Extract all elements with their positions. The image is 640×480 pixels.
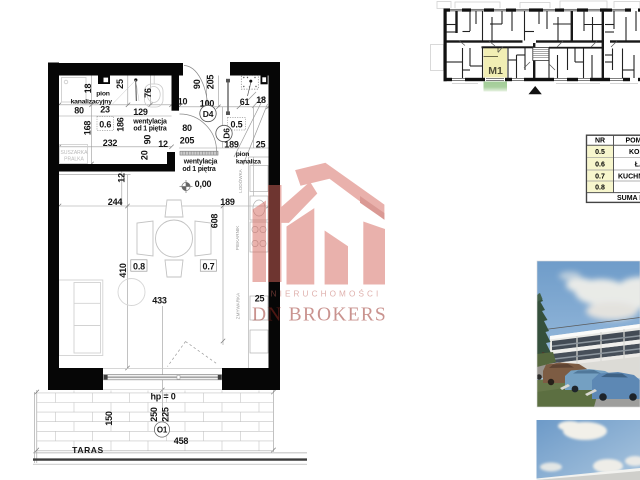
svg-text:150: 150 — [104, 411, 114, 426]
svg-text:KUCHNIA + P.: KUCHNIA + P. — [618, 173, 640, 180]
svg-text:18: 18 — [256, 95, 266, 105]
svg-text:61: 61 — [240, 97, 250, 107]
svg-text:0.7: 0.7 — [595, 173, 605, 180]
svg-text:POMIESZCZENIE: POMIESZCZENIE — [626, 138, 640, 145]
svg-text:23: 23 — [100, 104, 110, 114]
svg-text:PIEKARNIK: PIEKARNIK — [235, 225, 240, 250]
svg-text:od 1 piętra: od 1 piętra — [182, 166, 216, 173]
svg-text:kanaliza: kanaliza — [236, 158, 261, 165]
svg-text:0.6: 0.6 — [595, 161, 605, 168]
svg-text:76: 76 — [143, 88, 153, 98]
svg-text:90: 90 — [192, 79, 202, 89]
svg-text:12: 12 — [116, 173, 126, 183]
svg-text:hp = 0: hp = 0 — [150, 392, 175, 402]
svg-text:wentylacja: wentylacja — [183, 159, 218, 166]
svg-text:25: 25 — [256, 140, 266, 150]
svg-text:od 1 piętra: od 1 piętra — [133, 126, 167, 133]
svg-text:12: 12 — [158, 139, 168, 149]
svg-text:10: 10 — [178, 96, 188, 106]
svg-text:25: 25 — [255, 294, 265, 304]
svg-text:0.8: 0.8 — [133, 261, 145, 271]
svg-text:232: 232 — [103, 138, 118, 148]
svg-text:0.8: 0.8 — [595, 184, 605, 191]
svg-text:205: 205 — [180, 136, 195, 146]
svg-text:250: 250 — [149, 407, 159, 422]
svg-text:0.5: 0.5 — [595, 149, 605, 156]
svg-text:wentylacja: wentylacja — [132, 118, 167, 125]
svg-text:NR: NR — [595, 138, 605, 145]
svg-text:SUMA POW.: SUMA POW. — [617, 195, 640, 202]
svg-text:458: 458 — [174, 436, 189, 446]
svg-text:LODÓWKA: LODÓWKA — [237, 168, 243, 192]
svg-text:ZMYWARKA: ZMYWARKA — [236, 292, 241, 319]
svg-text:18: 18 — [83, 84, 93, 94]
svg-text:pion: pion — [96, 91, 110, 98]
svg-text:20: 20 — [139, 150, 149, 160]
svg-text:SUSZARKA: SUSZARKA — [61, 150, 89, 156]
svg-text:608: 608 — [210, 214, 220, 229]
svg-text:M1: M1 — [488, 65, 503, 77]
svg-text:80: 80 — [182, 123, 192, 133]
svg-text:DN BROKERS: DN BROKERS — [252, 305, 387, 326]
svg-text:D6: D6 — [221, 128, 231, 139]
svg-text:0.5: 0.5 — [231, 120, 243, 130]
svg-text:TARAS: TARAS — [72, 445, 104, 455]
svg-text:90: 90 — [142, 135, 152, 145]
svg-text:0.7: 0.7 — [203, 261, 215, 271]
svg-text:205: 205 — [206, 75, 216, 90]
svg-text:KORYTARZ: KORYTARZ — [629, 149, 640, 156]
svg-text:PRALKA: PRALKA — [64, 157, 84, 163]
svg-text:NIERUCHOMOŚCI: NIERUCHOMOŚCI — [271, 288, 382, 299]
svg-text:410: 410 — [118, 263, 128, 278]
svg-text:0,00: 0,00 — [195, 179, 212, 189]
svg-text:pion: pion — [236, 151, 250, 158]
svg-text:25: 25 — [115, 79, 125, 89]
svg-text:244: 244 — [108, 197, 123, 207]
svg-text:225: 225 — [161, 407, 171, 422]
svg-text:D4: D4 — [203, 109, 214, 119]
svg-text:129: 129 — [133, 107, 148, 117]
svg-text:189: 189 — [220, 197, 235, 207]
svg-text:433: 433 — [152, 295, 167, 305]
svg-text:186: 186 — [116, 117, 126, 132]
svg-text:ŁAZIENKA: ŁAZIENKA — [635, 161, 640, 168]
svg-text:O1: O1 — [157, 425, 168, 434]
svg-text:189: 189 — [224, 140, 239, 150]
svg-text:168: 168 — [83, 121, 93, 136]
svg-text:0.6: 0.6 — [99, 120, 111, 130]
svg-text:80: 80 — [74, 106, 84, 116]
